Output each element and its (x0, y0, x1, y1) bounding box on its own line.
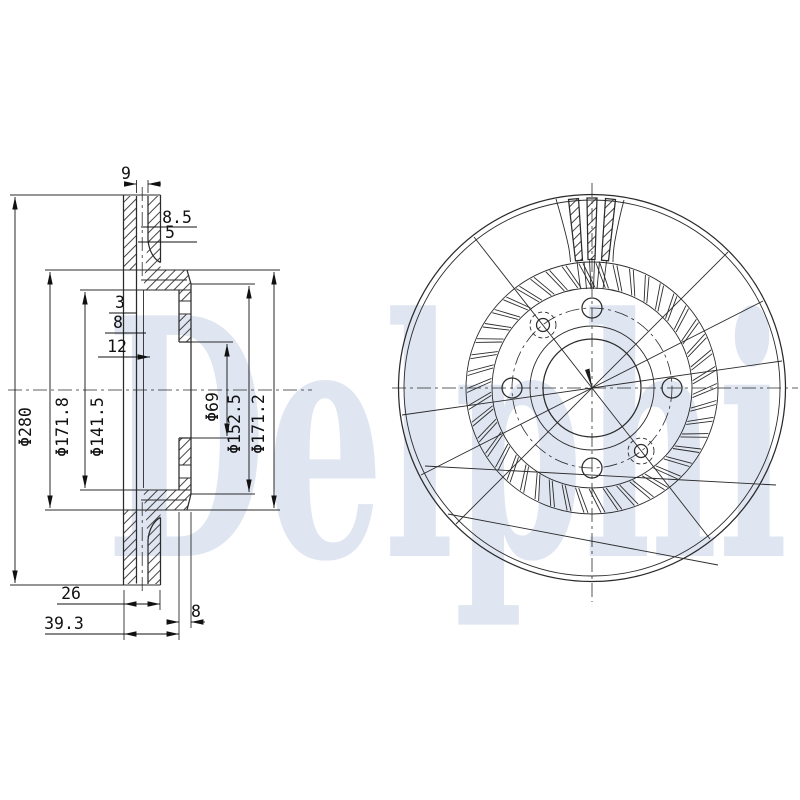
dim-flange-diameter: Φ152.5 (225, 394, 244, 454)
dim-pad-inner: 5 (165, 223, 175, 242)
dim-hat-diameter: Φ141.5 (88, 397, 107, 457)
dim-wall-a: 3 (115, 293, 125, 312)
drawing-page: Delphi (0, 0, 800, 800)
dim-overall-depth: 39.3 (44, 614, 84, 633)
brake-disc-technical-drawing: Delphi (0, 0, 800, 800)
dim-ring-inner-diameter: Φ171.8 (53, 397, 72, 457)
dim-wall-b: 8 (113, 313, 123, 332)
dim-outer-diameter: Φ280 (16, 407, 35, 447)
dim-shoulder-diameter: Φ171.2 (249, 394, 268, 454)
dim-bore-diameter: Φ69 (203, 392, 222, 422)
dim-wall-c: 12 (107, 337, 127, 356)
dim-flange-thickness: 8 (191, 602, 201, 621)
dim-ring-width: 26 (61, 584, 81, 603)
dim-slot-width: 9 (121, 164, 131, 183)
